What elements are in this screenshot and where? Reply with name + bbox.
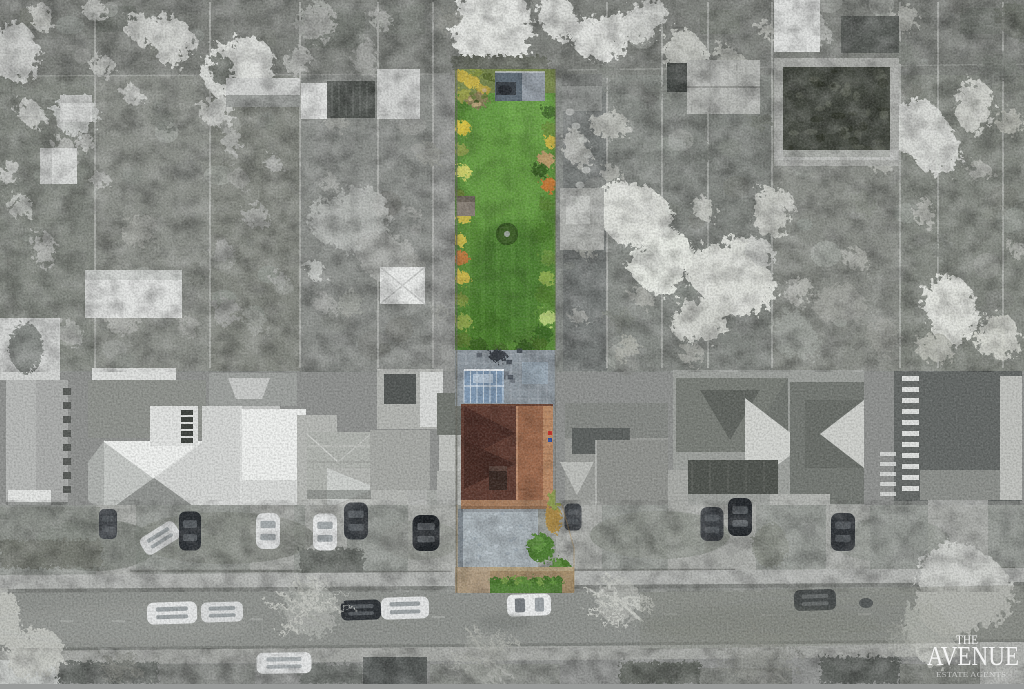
svg-text:AVENUE: AVENUE (927, 641, 1019, 671)
svg-text:ESTATE AGENTS: ESTATE AGENTS (936, 671, 1006, 679)
